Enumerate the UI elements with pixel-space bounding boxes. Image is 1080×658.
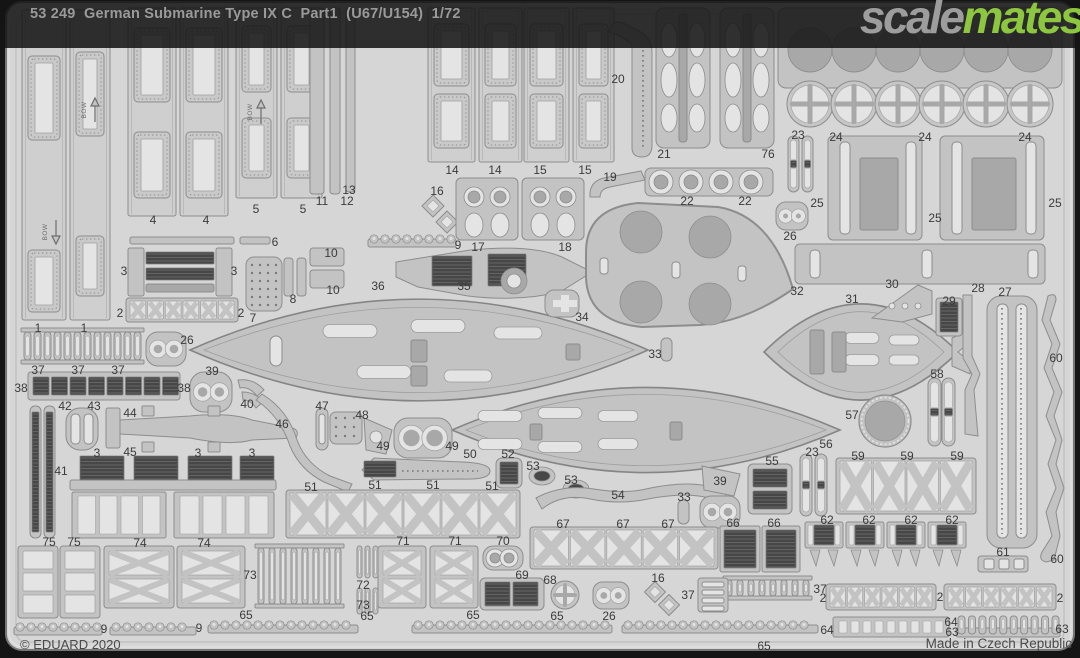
svg-text:7: 7 [250, 311, 257, 325]
svg-text:37: 37 [71, 363, 85, 377]
svg-text:22: 22 [738, 194, 752, 208]
svg-text:3: 3 [94, 446, 101, 460]
svg-text:46: 46 [275, 417, 289, 431]
svg-text:25: 25 [810, 196, 824, 210]
svg-text:37: 37 [31, 363, 45, 377]
svg-text:9: 9 [455, 238, 462, 252]
svg-text:30: 30 [885, 277, 899, 291]
svg-text:51: 51 [485, 479, 499, 493]
svg-text:48: 48 [355, 408, 369, 422]
svg-text:56: 56 [819, 437, 833, 451]
svg-text:61: 61 [996, 545, 1010, 559]
svg-text:62: 62 [904, 513, 918, 527]
svg-text:33: 33 [648, 347, 662, 361]
svg-text:1: 1 [81, 321, 88, 335]
svg-text:42: 42 [58, 399, 72, 413]
svg-text:65: 65 [757, 639, 771, 653]
svg-text:28: 28 [971, 281, 985, 295]
svg-text:21: 21 [657, 147, 671, 161]
svg-text:72: 72 [356, 578, 370, 592]
svg-text:60: 60 [1049, 351, 1063, 365]
svg-text:37: 37 [681, 588, 695, 602]
svg-text:11: 11 [316, 194, 329, 208]
svg-text:23: 23 [805, 445, 819, 459]
svg-text:65: 65 [239, 608, 253, 622]
svg-text:15: 15 [533, 163, 547, 177]
svg-text:27: 27 [998, 285, 1012, 299]
svg-text:31: 31 [845, 292, 859, 306]
svg-text:19: 19 [603, 170, 617, 184]
svg-text:16: 16 [651, 571, 665, 585]
svg-text:13: 13 [342, 183, 356, 197]
svg-text:38: 38 [14, 381, 28, 395]
svg-text:54: 54 [611, 488, 625, 502]
svg-text:17: 17 [471, 240, 485, 254]
svg-text:63: 63 [1055, 622, 1069, 636]
svg-text:38: 38 [177, 381, 191, 395]
svg-text:67: 67 [661, 517, 675, 531]
svg-text:66: 66 [767, 516, 781, 530]
svg-text:3: 3 [121, 264, 128, 278]
watermark-band: 53 249 German Submarine Type IX C Part1 … [0, 0, 1080, 48]
svg-text:52: 52 [501, 447, 515, 461]
svg-text:2: 2 [937, 590, 944, 604]
svg-text:69: 69 [515, 568, 529, 582]
svg-text:73: 73 [243, 568, 257, 582]
svg-text:5: 5 [253, 202, 260, 216]
svg-text:49: 49 [445, 439, 459, 453]
svg-text:43: 43 [87, 399, 101, 413]
svg-text:8: 8 [290, 292, 297, 306]
svg-text:35: 35 [457, 279, 471, 293]
svg-text:59: 59 [950, 449, 964, 463]
svg-text:26: 26 [783, 229, 797, 243]
svg-text:14: 14 [445, 163, 459, 177]
svg-text:39: 39 [205, 364, 219, 378]
svg-text:15: 15 [578, 163, 592, 177]
sheet-title: 53 249 German Submarine Type IX C Part1 … [30, 6, 461, 22]
svg-text:75: 75 [67, 535, 81, 549]
svg-text:67: 67 [616, 517, 630, 531]
svg-text:26: 26 [602, 609, 616, 623]
svg-text:67: 67 [556, 517, 570, 531]
svg-text:74: 74 [197, 536, 211, 550]
svg-text:2: 2 [238, 306, 245, 320]
svg-text:73: 73 [356, 598, 370, 612]
svg-text:25: 25 [1048, 196, 1062, 210]
logo-mates-text: mates [963, 0, 1080, 43]
svg-text:70: 70 [496, 534, 510, 548]
svg-text:5: 5 [300, 202, 307, 216]
svg-text:14: 14 [488, 163, 502, 177]
svg-text:51: 51 [426, 478, 440, 492]
svg-text:4: 4 [203, 213, 210, 227]
svg-text:55: 55 [765, 454, 779, 468]
svg-text:68: 68 [543, 573, 557, 587]
svg-text:29: 29 [942, 294, 956, 308]
svg-text:9: 9 [101, 622, 108, 636]
copyright-text: © EDUARD 2020 [20, 637, 121, 652]
svg-text:66: 66 [726, 516, 740, 530]
svg-text:76: 76 [761, 147, 775, 161]
svg-text:BOW: BOW [247, 103, 254, 120]
svg-text:59: 59 [851, 449, 865, 463]
svg-text:23: 23 [791, 128, 805, 142]
svg-text:3: 3 [249, 446, 256, 460]
svg-text:3: 3 [231, 264, 238, 278]
svg-text:62: 62 [862, 513, 876, 527]
svg-text:9: 9 [196, 621, 203, 635]
svg-text:1: 1 [35, 321, 42, 335]
svg-text:65: 65 [550, 609, 564, 623]
pe-fret-sheet: BOWBOWBOW1144551112131414151516161718192… [0, 0, 1080, 658]
svg-text:6: 6 [272, 235, 279, 249]
svg-text:18: 18 [558, 240, 572, 254]
svg-text:BOW: BOW [81, 101, 88, 118]
svg-text:51: 51 [368, 478, 382, 492]
svg-text:24: 24 [1018, 130, 1032, 144]
svg-text:20: 20 [611, 72, 625, 86]
svg-text:2: 2 [820, 591, 827, 605]
svg-text:24: 24 [918, 130, 932, 144]
svg-text:33: 33 [677, 490, 691, 504]
svg-text:34: 34 [575, 310, 589, 324]
svg-text:64: 64 [944, 615, 958, 629]
svg-text:62: 62 [945, 513, 959, 527]
svg-text:74: 74 [133, 536, 147, 550]
svg-text:53: 53 [564, 473, 578, 487]
svg-text:25: 25 [928, 211, 942, 225]
svg-text:47: 47 [315, 399, 329, 413]
svg-text:75: 75 [42, 535, 56, 549]
svg-text:37: 37 [111, 363, 125, 377]
svg-text:44: 44 [123, 406, 137, 420]
svg-text:39: 39 [713, 474, 727, 488]
svg-text:16: 16 [430, 184, 444, 198]
svg-text:10: 10 [326, 283, 340, 297]
svg-text:62: 62 [820, 513, 834, 527]
svg-text:BOW: BOW [42, 223, 49, 240]
svg-text:51: 51 [304, 480, 318, 494]
svg-text:53: 53 [526, 459, 540, 473]
photoetch-product-photo: BOWBOWBOW1144551112131414151516161718192… [0, 0, 1080, 658]
svg-text:50: 50 [463, 447, 477, 461]
svg-text:2: 2 [117, 306, 124, 320]
svg-text:10: 10 [324, 246, 338, 260]
svg-text:59: 59 [900, 449, 914, 463]
svg-text:24: 24 [829, 130, 843, 144]
svg-text:22: 22 [680, 194, 694, 208]
svg-text:32: 32 [790, 284, 804, 298]
svg-text:71: 71 [396, 534, 410, 548]
svg-text:36: 36 [371, 279, 385, 293]
svg-text:71: 71 [448, 534, 462, 548]
svg-text:58: 58 [930, 367, 944, 381]
svg-text:4: 4 [150, 213, 157, 227]
svg-text:65: 65 [466, 608, 480, 622]
logo-scale-text: scale [860, 0, 963, 43]
svg-text:60: 60 [1050, 552, 1064, 566]
svg-text:64: 64 [820, 623, 834, 637]
made-in-text: Made in Czech Republic [926, 636, 1072, 651]
svg-text:2: 2 [1057, 591, 1064, 605]
svg-text:45: 45 [123, 445, 137, 459]
svg-text:26: 26 [180, 333, 194, 347]
scalemates-logo: scalemates [860, 0, 1080, 40]
svg-text:57: 57 [845, 408, 859, 422]
svg-text:3: 3 [195, 446, 202, 460]
svg-text:41: 41 [54, 464, 68, 478]
svg-text:49: 49 [376, 439, 390, 453]
svg-text:40: 40 [240, 397, 254, 411]
